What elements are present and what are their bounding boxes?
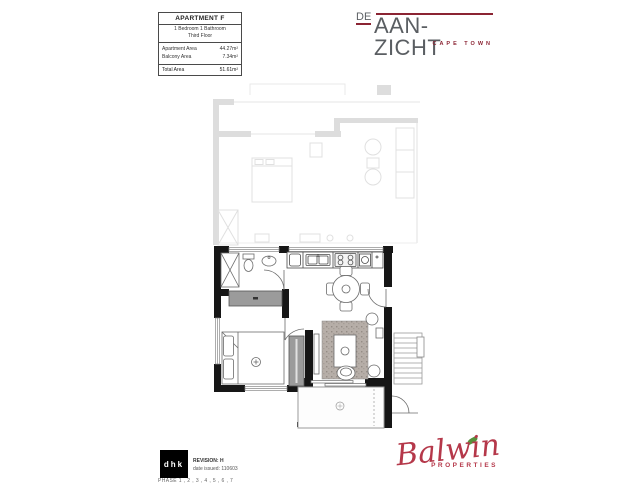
basin [262, 256, 276, 266]
balwin-logo: Balwin PROPERTIES [392, 436, 504, 469]
faded-upper-apartment [213, 84, 420, 245]
fridge [290, 254, 301, 266]
faded-living-furniture [255, 128, 414, 242]
entry-door-arc [368, 289, 386, 307]
stair-handrail [417, 337, 424, 357]
dhk-logo-text: dhk [164, 460, 184, 469]
shower [221, 253, 239, 287]
side-chair [366, 313, 378, 325]
landing-door-arc [392, 396, 418, 413]
bed [222, 332, 284, 384]
dining-chair [340, 302, 352, 311]
dhk-logo: dhk [160, 450, 188, 478]
stove [335, 254, 356, 267]
floor-plan [0, 0, 640, 490]
side-chair [368, 365, 380, 377]
toilet [243, 254, 254, 272]
dining-set [327, 267, 370, 312]
sink [306, 255, 330, 266]
revision-block: REVISION: H date issued: 110603 [193, 457, 238, 473]
faded-stairwell [218, 210, 238, 245]
side-table [376, 328, 383, 338]
coffee-table [334, 335, 356, 367]
oven [360, 254, 371, 266]
dining-chair [340, 267, 352, 276]
plan-sheet: APARTMENT F 1 Bedroom 1 Bathroom Third F… [0, 0, 640, 490]
faded-bed [252, 158, 292, 202]
bathroom-fixtures [221, 253, 284, 290]
date-issued: date issued: 110603 [193, 465, 238, 473]
balcony [298, 387, 384, 428]
revision-label: REVISION: H [193, 457, 238, 465]
bathroom-door-arc [264, 270, 284, 290]
bedroom-furniture [222, 291, 304, 386]
dining-table [333, 276, 360, 303]
staircase [394, 333, 424, 384]
phase-note: PHASE 1 , 2 , 3 , 4 , 5 , 6 , 7 [158, 478, 233, 484]
tv-unit [314, 334, 319, 374]
kitchen-counter [287, 252, 383, 268]
sliding-door [311, 381, 366, 387]
armchair [337, 366, 355, 380]
